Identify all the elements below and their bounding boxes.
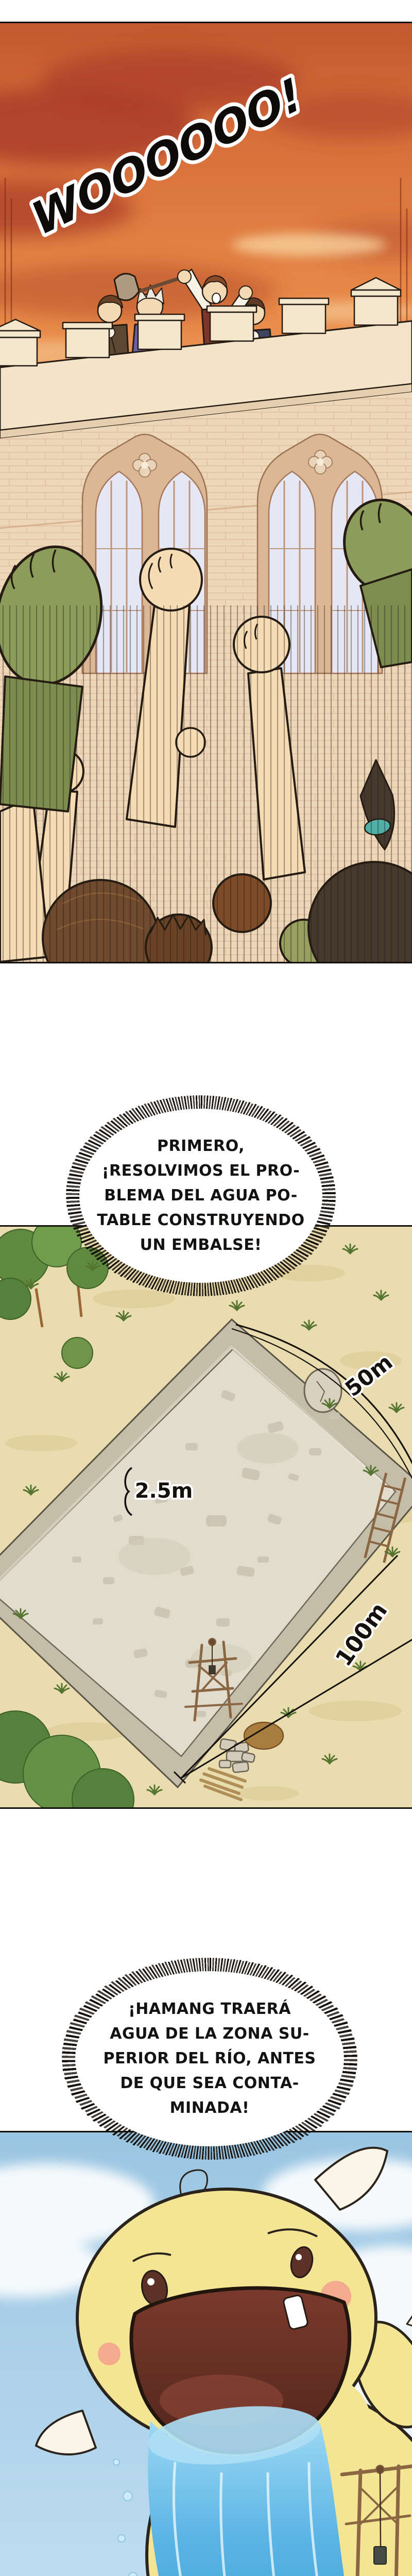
sfx-woooooo: WOOOOOO! — [15, 26, 366, 268]
bubble-line: AGUA DE LA ZONA SU- — [110, 2022, 310, 2046]
boulder — [304, 1369, 341, 1412]
depth-label: 2.5m — [135, 1479, 193, 1503]
bubble-line: PRIMERO, — [157, 1134, 245, 1159]
bubble-line: ¡HAMANG TRAERÁ — [128, 1997, 291, 2022]
webtoon-page: WOOOOOO! — [0, 0, 412, 2576]
bubble-line: BLEMA DEL AGUA PO- — [104, 1183, 297, 1208]
hamang-cheek — [98, 2343, 121, 2365]
speed-lines-overlay — [0, 605, 412, 962]
reservoir-diagram-art: 50m 2.5m 100m — [0, 1227, 412, 1807]
dirt-mound — [244, 1722, 283, 1749]
bubble-line: DE QUE SEA CONTA- — [120, 2071, 299, 2096]
panel-hamang-water — [0, 2131, 412, 2576]
bubble-line: UN EMBALSE! — [140, 1233, 262, 1258]
hamang-art — [0, 2132, 412, 2576]
panel-reservoir-diagram: 50m 2.5m 100m — [0, 1225, 412, 1809]
sfx-text: WOOOOOO! — [26, 68, 308, 246]
bubble-line: TABLE CONSTRUYENDO — [97, 1208, 304, 1233]
bubble-line: MINADA! — [170, 2096, 250, 2121]
bubble-line: ¡RESOLVIMOS EL PRO- — [102, 1159, 300, 1183]
bubble-line: PERIOR DEL RÍO, ANTES — [103, 2046, 316, 2071]
speech-bubble-burst-1: PRIMERO, ¡RESOLVIMOS EL PRO- BLEMA DEL A… — [66, 1095, 336, 1296]
shovel-blade — [114, 274, 139, 300]
speech-bubble-burst-2: ¡HAMANG TRAERÁ AGUA DE LA ZONA SU- PERIO… — [62, 1958, 357, 2160]
